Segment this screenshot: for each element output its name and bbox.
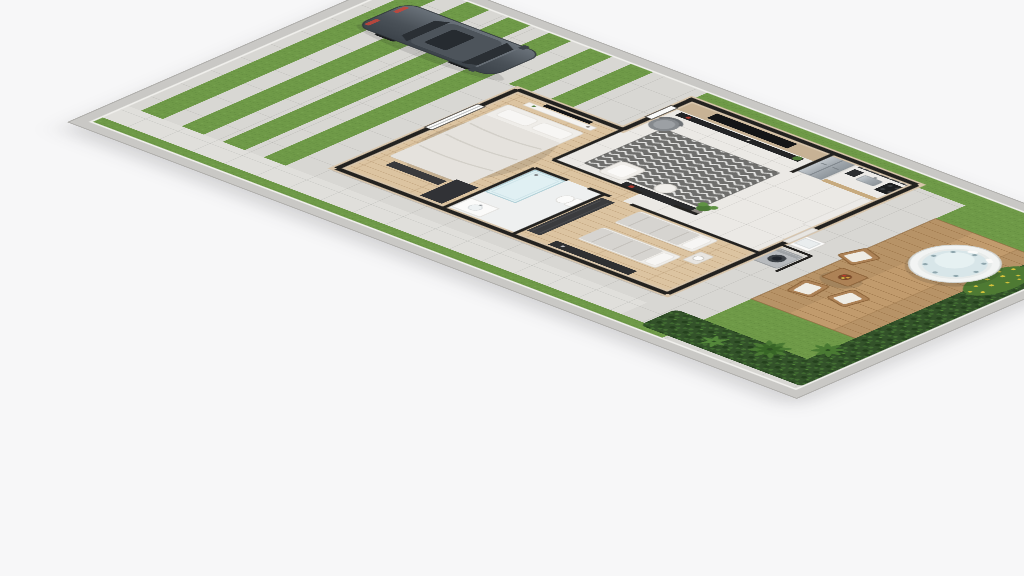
floorplan-scene <box>0 0 1024 576</box>
lot-plan <box>80 0 1024 394</box>
lot-3d-wrap <box>80 0 1024 394</box>
